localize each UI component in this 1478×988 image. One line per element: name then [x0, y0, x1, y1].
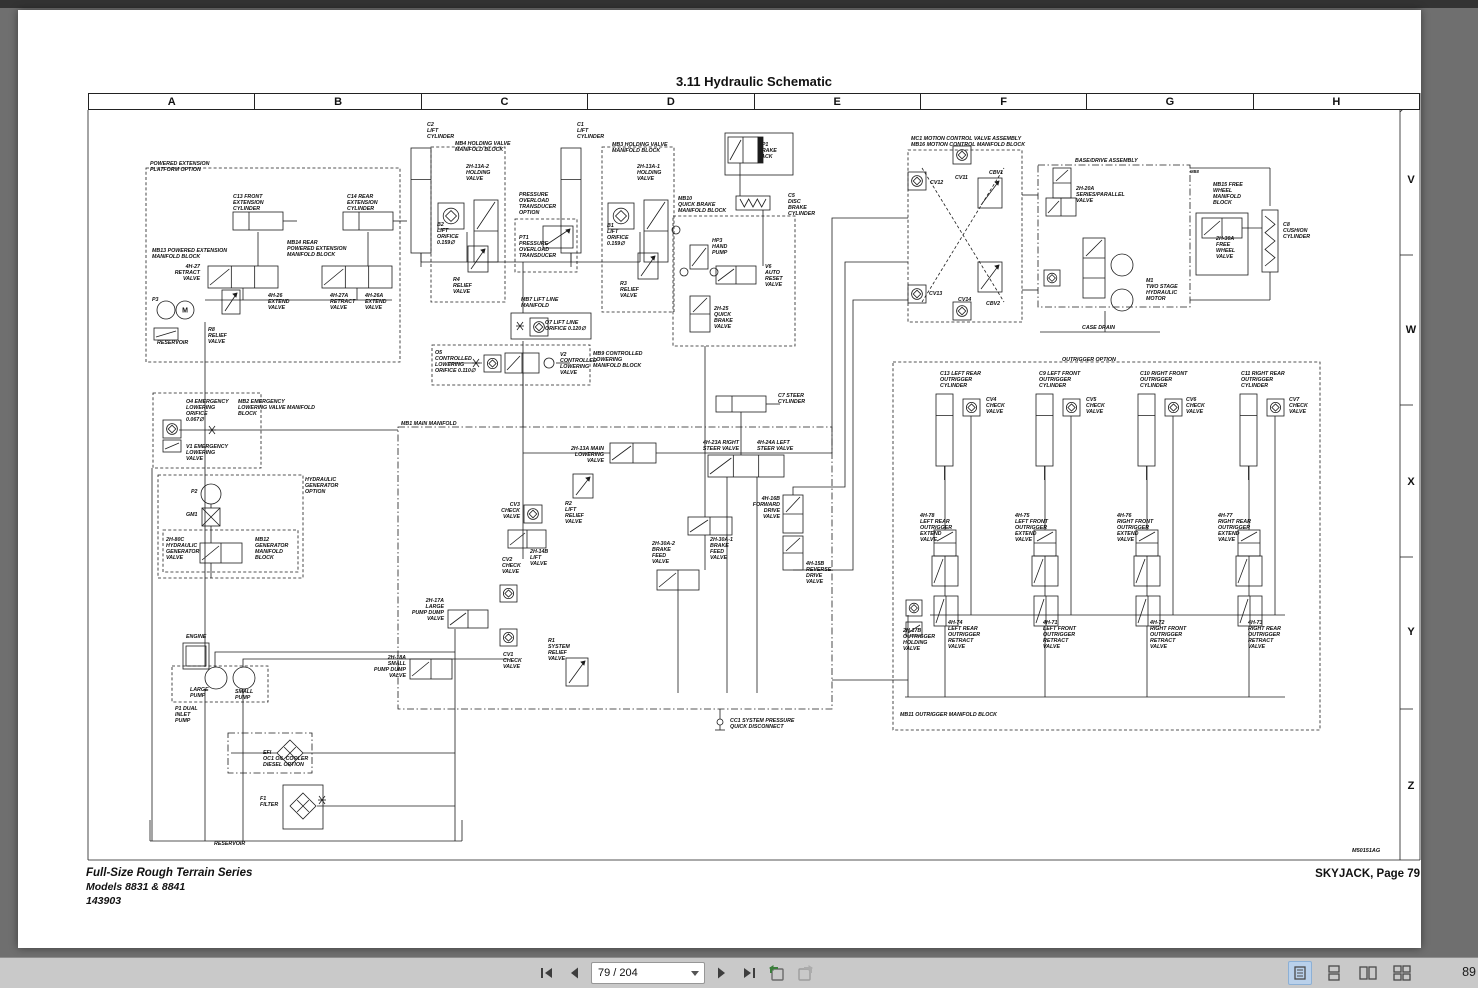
next-view-icon	[796, 964, 814, 982]
zoom-level: 89	[1462, 965, 1476, 979]
next-page-icon	[713, 965, 729, 981]
continuous-view-icon	[1326, 965, 1342, 981]
two-page-view-button[interactable]	[1356, 961, 1380, 985]
grid-column-a: A	[89, 94, 255, 109]
last-page-icon	[741, 965, 757, 981]
model-numbers: Models 8831 & 8841	[86, 880, 252, 894]
two-page-continuous-view-button[interactable]	[1390, 961, 1414, 985]
grid-row-w: W	[1402, 324, 1420, 336]
grid-row-z: Z	[1402, 780, 1420, 792]
grid-column-c: C	[422, 94, 588, 109]
window-top-strip	[0, 0, 1478, 8]
next-page-button[interactable]	[709, 961, 733, 985]
continuous-view-button[interactable]	[1322, 961, 1346, 985]
previous-page-button[interactable]	[563, 961, 587, 985]
single-page-view-icon	[1292, 965, 1308, 981]
grid-column-e: E	[755, 94, 921, 109]
footer-left: Full-Size Rough Terrain Series Models 88…	[86, 866, 252, 908]
grid-column-header: A B C D E F G H	[88, 93, 1420, 110]
page-number-combobox[interactable]	[591, 962, 705, 984]
two-page-continuous-view-icon	[1393, 965, 1411, 981]
grid-column-g: G	[1087, 94, 1253, 109]
previous-view-icon	[768, 964, 786, 982]
chevron-down-icon	[691, 971, 699, 976]
footer-page-ref: SKYJACK, Page 79	[1190, 868, 1420, 880]
single-page-view-button[interactable]	[1288, 961, 1312, 985]
page-navigation-cluster	[535, 958, 817, 988]
page-number-input[interactable]	[592, 964, 684, 982]
grid-column-h: H	[1254, 94, 1419, 109]
drawing-ref: M50151AG	[1352, 848, 1380, 854]
first-page-icon	[539, 965, 555, 981]
previous-page-icon	[567, 965, 583, 981]
grid-row-x: X	[1402, 476, 1420, 488]
pdf-toolbar: 89	[0, 957, 1478, 988]
grid-column-d: D	[588, 94, 754, 109]
document-number: 143903	[86, 894, 252, 908]
grid-row-y: Y	[1402, 626, 1420, 638]
pdf-page	[18, 10, 1421, 948]
schematic-title: 3.11 Hydraulic Schematic	[88, 74, 1420, 89]
grid-column-b: B	[255, 94, 421, 109]
first-page-button[interactable]	[535, 961, 559, 985]
last-page-button[interactable]	[737, 961, 761, 985]
previous-view-button[interactable]	[765, 961, 789, 985]
two-page-view-icon	[1359, 965, 1377, 981]
page-layout-cluster	[1288, 958, 1414, 988]
grid-column-f: F	[921, 94, 1087, 109]
next-view-button[interactable]	[793, 961, 817, 985]
grid-row-v: V	[1402, 174, 1420, 186]
pdf-viewer-window: { "page": { "title": "3.11 Hydraulic Sch…	[0, 0, 1478, 987]
series-title: Full-Size Rough Terrain Series	[86, 866, 252, 880]
